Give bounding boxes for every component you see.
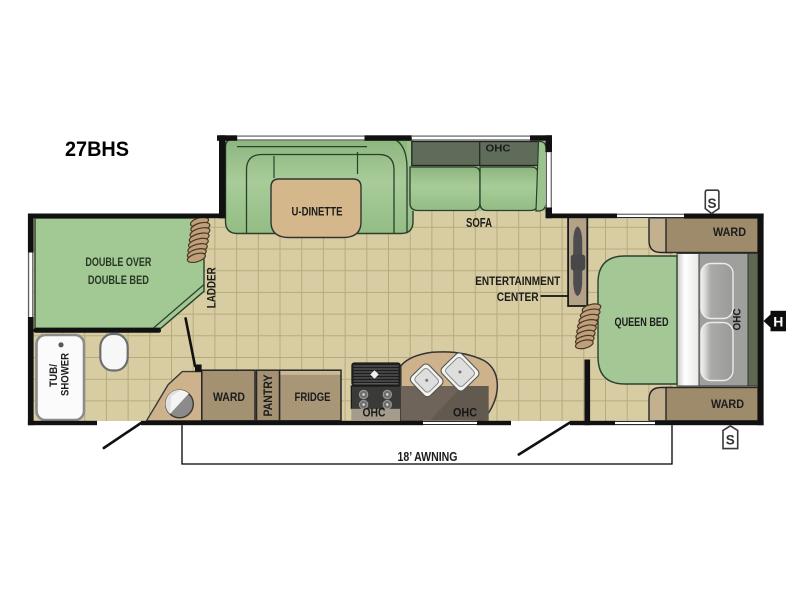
- svg-text:OHC: OHC: [453, 408, 477, 420]
- svg-text:18’ AWNING: 18’ AWNING: [398, 449, 458, 464]
- svg-text:ENTERTAINMENT: ENTERTAINMENT: [475, 276, 560, 288]
- svg-text:WARD: WARD: [713, 225, 746, 239]
- svg-text:DOUBLE OVER: DOUBLE OVER: [85, 257, 152, 269]
- svg-text:LADDER: LADDER: [205, 267, 219, 308]
- svg-text:WARD: WARD: [711, 397, 744, 411]
- svg-text:SOFA: SOFA: [466, 216, 492, 230]
- svg-text:S: S: [707, 196, 716, 211]
- svg-text:TUB/: TUB/: [48, 364, 60, 387]
- svg-text:SHOWER: SHOWER: [60, 353, 72, 396]
- svg-text:H: H: [773, 314, 783, 330]
- svg-text:S: S: [726, 433, 735, 448]
- svg-text:27BHS: 27BHS: [65, 138, 129, 161]
- svg-text:QUEEN BED: QUEEN BED: [615, 315, 669, 329]
- svg-text:OHC: OHC: [363, 408, 386, 420]
- svg-text:DOUBLE BED: DOUBLE BED: [88, 275, 149, 287]
- svg-text:PANTRY: PANTRY: [261, 375, 275, 417]
- svg-text:CENTER: CENTER: [497, 292, 540, 304]
- svg-text:FRIDGE: FRIDGE: [295, 390, 331, 404]
- svg-text:OHC: OHC: [732, 308, 744, 330]
- svg-text:U-DINETTE: U-DINETTE: [292, 207, 343, 219]
- svg-text:OHC: OHC: [486, 143, 511, 155]
- svg-text:WARD: WARD: [213, 390, 245, 404]
